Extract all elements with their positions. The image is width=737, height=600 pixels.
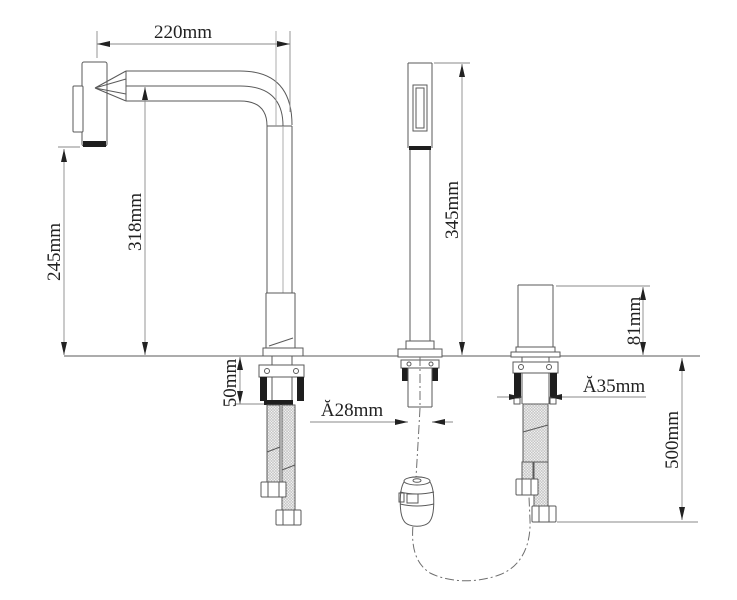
spout-mounting-hardware — [259, 356, 304, 405]
hose-weight — [399, 477, 434, 527]
dimension-spout-underside-height: 318mm — [125, 87, 148, 355]
dim-label-sprayer-hole-diameter: Ă28mm — [321, 400, 384, 421]
side-valve — [511, 285, 560, 522]
dim-label-sprayer-height: 345mm — [442, 181, 463, 239]
faucet-technical-drawing: 220mm 245mm 318mm 345mm 81mm 50mm — [0, 0, 737, 600]
main-spout — [73, 31, 304, 525]
dim-label-hose-length: 500mm — [662, 411, 683, 469]
valve-hose — [516, 404, 556, 522]
dimension-valve-height: 81mm — [556, 286, 650, 355]
spout-tube — [126, 31, 292, 293]
dim-label-spout-reach: 220mm — [154, 22, 212, 43]
dim-label-valve-hole-diameter: Ă35mm — [583, 376, 646, 397]
dimension-outlet-height: 245mm — [44, 147, 80, 355]
technical-drawing-page: 220mm 245mm 318mm 345mm 81mm 50mm — [0, 0, 737, 600]
sprayer-button — [413, 85, 427, 131]
supply-hoses — [261, 405, 301, 525]
hand-sprayer — [398, 63, 442, 407]
spout-body-base — [263, 293, 303, 356]
dimension-sprayer-height: 345mm — [434, 63, 470, 355]
dim-label-spout-underside-height: 318mm — [125, 193, 146, 251]
dimension-hose-length: 500mm — [662, 358, 685, 520]
dimension-clamp-range: 50mm — [220, 357, 264, 407]
dim-label-outlet-height: 245mm — [44, 223, 65, 281]
pullout-hose — [413, 357, 530, 581]
dim-label-valve-height: 81mm — [624, 297, 645, 346]
dim-label-clamp-range: 50mm — [220, 359, 241, 408]
spout-head — [73, 62, 126, 147]
